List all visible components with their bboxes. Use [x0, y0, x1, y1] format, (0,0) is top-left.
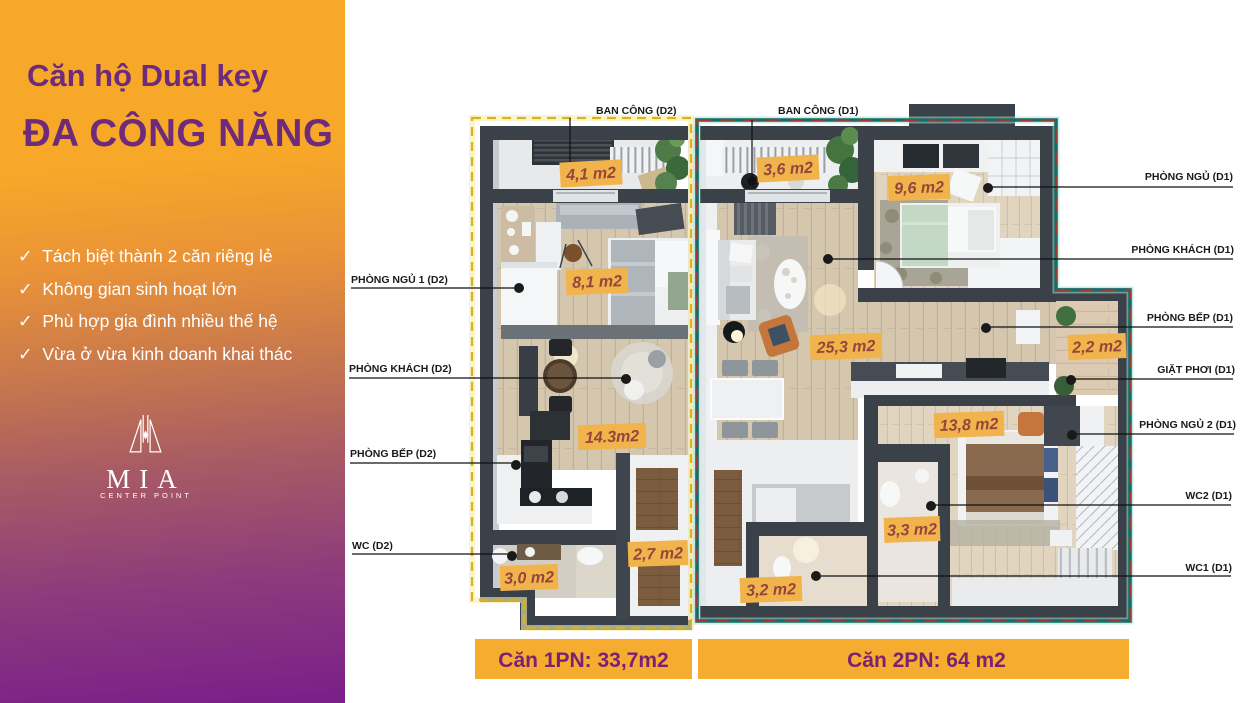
svg-text:PHÒNG KHÁCH (D1): PHÒNG KHÁCH (D1): [1131, 243, 1234, 256]
svg-text:2,2 m2: 2,2 m2: [1071, 338, 1122, 357]
svg-text:9,6 m2: 9,6 m2: [894, 179, 944, 198]
svg-text:BAN CÔNG (D1): BAN CÔNG (D1): [778, 104, 859, 117]
svg-text:BAN CÔNG (D2): BAN CÔNG (D2): [596, 104, 677, 117]
svg-text:3,6 m2: 3,6 m2: [763, 160, 814, 180]
svg-text:PHÒNG BẾP (D2): PHÒNG BẾP (D2): [350, 447, 436, 460]
svg-text:3,2 m2: 3,2 m2: [746, 581, 796, 600]
svg-text:25,3 m2: 25,3 m2: [815, 338, 875, 357]
svg-text:PHÒNG NGỦ 1 (D2): PHÒNG NGỦ 1 (D2): [351, 273, 448, 286]
svg-text:WC1 (D1): WC1 (D1): [1185, 562, 1232, 574]
svg-text:PHÒNG NGỦ (D1): PHÒNG NGỦ (D1): [1145, 170, 1233, 183]
svg-text:2,7 m2: 2,7 m2: [632, 545, 683, 564]
svg-text:WC (D2): WC (D2): [352, 540, 393, 552]
svg-text:PHÒNG KHÁCH (D2): PHÒNG KHÁCH (D2): [349, 362, 452, 375]
svg-text:GIẶT PHƠI (D1): GIẶT PHƠI (D1): [1157, 363, 1235, 376]
svg-text:3,0 m2: 3,0 m2: [504, 569, 554, 588]
svg-text:3,3 m2: 3,3 m2: [887, 521, 937, 540]
svg-text:8,1 m2: 8,1 m2: [572, 273, 622, 292]
svg-text:4,1 m2: 4,1 m2: [565, 165, 617, 185]
svg-text:13,8 m2: 13,8 m2: [939, 416, 998, 435]
svg-text:WC2 (D1): WC2 (D1): [1185, 490, 1232, 502]
svg-text:PHÒNG NGỦ 2 (D1): PHÒNG NGỦ 2 (D1): [1139, 418, 1236, 431]
svg-text:PHÒNG BẾP (D1): PHÒNG BẾP (D1): [1147, 311, 1233, 324]
svg-text:14.3m2: 14.3m2: [585, 428, 640, 447]
